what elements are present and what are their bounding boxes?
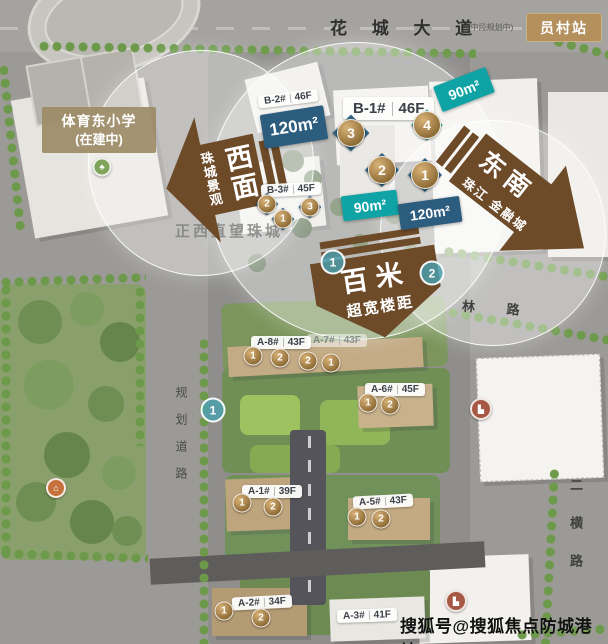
building-floors: 39F [279,486,296,497]
building-floors: 43F [344,335,361,346]
building-poi-icon: ▙ [445,590,467,612]
unit-marker: 2 [258,195,277,214]
unit-marker: 1 [411,161,439,189]
entrance-marker: 2 [420,261,445,286]
building-name: A-1# [248,486,270,497]
building-floors: 43F [389,495,407,507]
lawn [240,395,300,435]
unit-marker: 4 [413,111,441,139]
tree [70,292,104,326]
site-plan-map: 正西直望珠城 珠城景观 西面 东南 珠江 金融城 百米 超宽楼距 120m² 9… [0,0,608,644]
unit-marker: 1 [215,602,234,621]
label-divider [292,185,293,194]
building-label-a8: A-8#43F [251,336,311,349]
unit-marker: 2 [271,349,290,368]
pavilion-poi-icon: ⌂ [46,478,66,498]
tree [24,360,74,410]
street-trees [0,284,11,556]
unit-marker: 1 [233,494,252,513]
label-divider [274,487,275,496]
building-poi-icon: ▙ [470,398,492,420]
unit-marker: 2 [252,609,271,628]
label-divider [392,102,393,116]
building-name: A-7# [313,335,335,346]
unit-marker: 1 [274,210,293,229]
road-note: (中段规划中) [468,22,513,33]
school-badge: 体育东小学 (在建中) [42,107,156,153]
school-status: (在建中) [75,131,123,149]
unit-marker: 3 [337,119,365,147]
building-label-a6: A-6#45F [365,383,425,396]
building-name: A-2# [238,597,260,609]
tree [18,300,62,344]
label-divider [289,94,291,103]
city-block [476,354,604,482]
tree [102,456,136,490]
label-divider [263,598,264,607]
station-badge: 员村站 [526,13,602,42]
building-name: B-2# [264,93,287,107]
building-floors: 46F [294,90,312,103]
label-divider [369,611,370,620]
building-name: A-5# [359,496,381,508]
unit-marker: 1 [348,508,367,527]
street-trees [134,286,145,446]
building-name: B-1# [353,100,386,117]
unit-marker: 2 [372,510,391,529]
watermark-text: 搜狐号@搜狐焦点防城港站 [400,612,608,644]
unit-marker: 1 [244,347,263,366]
tree-poi-icon: ♣ [93,158,112,177]
road-name-planned: 规划道路 [173,386,190,494]
unit-marker: 2 [381,396,400,415]
building-label-a1: A-1#39F [242,485,302,498]
street-trees [198,338,209,644]
tree [70,500,114,544]
road-name-huacheng: 花 城 大 道 [330,14,482,39]
internal-road [290,430,326,605]
unit-marker: 2 [299,352,318,371]
building-floors: 41F [373,609,391,621]
building-gap-arrow: 百米 超宽楼距 [307,225,448,347]
building-label-a3: A-3#41F [337,608,397,623]
tree [112,516,142,546]
building-floors: 34F [268,596,286,608]
building-floors: 43F [288,337,305,348]
building-name: A-6# [371,384,393,395]
building-label-a7: A-7#43F [307,334,367,347]
unit-marker: 2 [264,498,283,517]
tree [88,386,124,422]
unit-marker: 1 [322,354,341,373]
label-divider [397,385,398,394]
unit-marker: 3 [301,198,320,217]
unit-marker: 1 [359,394,378,413]
road-name-erheng: 二横路 [566,478,585,592]
label-divider [339,336,340,345]
building-floors: 45F [297,183,315,195]
school-name: 体育东小学 [62,112,137,131]
label-divider [283,338,284,347]
building-floors: 45F [402,384,419,395]
unit-marker: 2 [368,156,396,184]
building-name: A-3# [343,610,365,622]
tree [44,432,90,478]
entrance-marker: 1 [201,398,226,423]
label-divider [384,497,385,506]
entrance-marker: 1 [321,250,346,275]
building-name: A-8# [257,337,279,348]
